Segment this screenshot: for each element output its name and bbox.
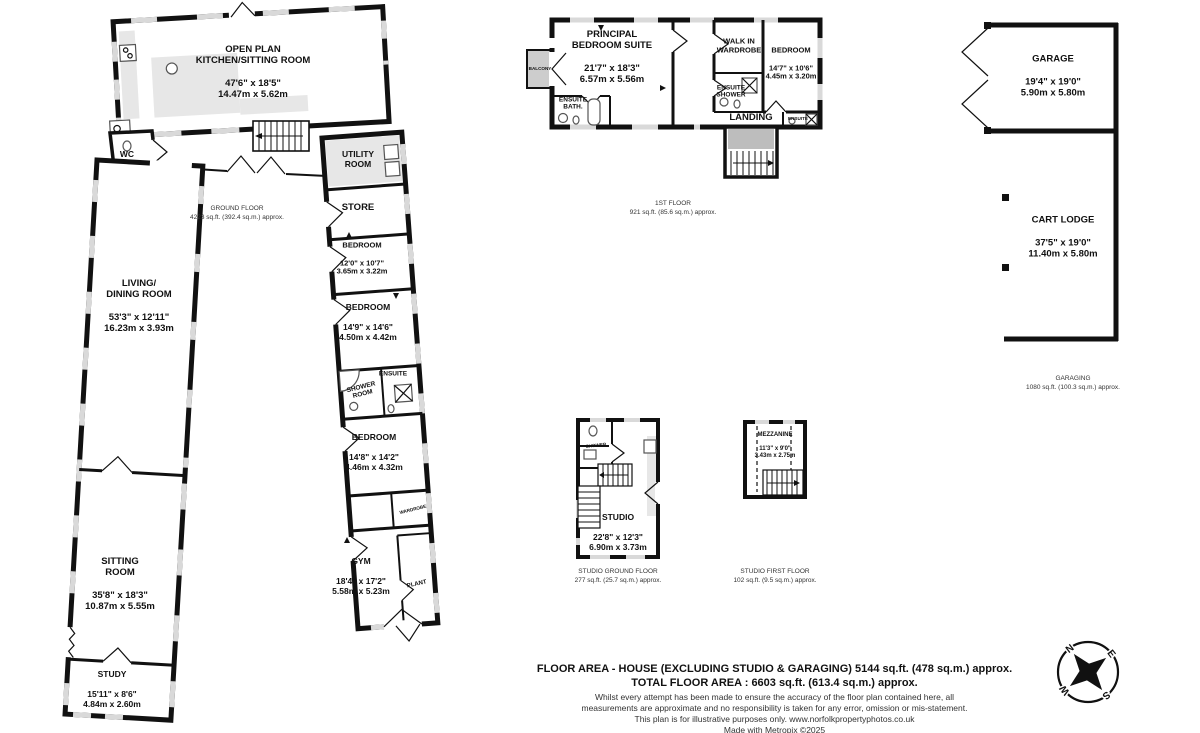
room-label-ensuite-ff: ENSUITE bbox=[788, 111, 808, 127]
floorplan-svg: N E S W bbox=[0, 0, 1200, 733]
left-wing bbox=[65, 160, 203, 720]
disclaimer-text: Whilst every attempt has been made to en… bbox=[352, 692, 1197, 733]
floorplan-page: N E S W OPEN PLAN KITCHEN/SITTING ROOM 4… bbox=[0, 0, 1200, 733]
room-label-cart-lodge: CART LODGE 37'5" x 19'0" 11.40m x 5.80m bbox=[1028, 203, 1097, 270]
garage-door-icon bbox=[962, 80, 988, 128]
room-label-walk-in-wardrobe: WALK IN WARDROBE bbox=[717, 28, 762, 63]
garage-door-icon bbox=[962, 28, 988, 76]
room-label-ensuite-gf: ENSUITE bbox=[379, 363, 407, 386]
studio-first-area-label: STUDIO FIRST FLOOR 102 sq.ft. (9.5 sq.m.… bbox=[733, 560, 816, 594]
room-label-bedroom-ff: BEDROOM 14'7" x 10'6" 4.45m x 3.20m bbox=[766, 37, 817, 90]
room-label-utility: UTILITY ROOM bbox=[342, 139, 374, 179]
stairs-icon bbox=[763, 470, 803, 495]
room-label-kitchen: OPEN PLAN KITCHEN/SITTING ROOM 47'6" x 1… bbox=[196, 33, 311, 111]
room-label-studio-shower: SHOWER bbox=[585, 437, 607, 455]
room-label-bedroom-b: BEDROOM 14'9" x 14'6" 4.50m x 4.42m bbox=[339, 292, 397, 352]
room-label-wc: WC bbox=[120, 139, 134, 169]
room-label-balcony: BALCONY bbox=[529, 61, 552, 77]
footer: FLOOR AREA - HOUSE (EXCLUDING STUDIO & G… bbox=[352, 663, 1197, 733]
sink-icon bbox=[166, 63, 178, 75]
room-label-studio: STUDIO 22'8" x 12'3" 6.90m x 3.73m bbox=[589, 502, 647, 562]
room-label-sitting: SITTING ROOM 35'8" x 18'3" 10.87m x 5.55… bbox=[85, 545, 155, 623]
floor-area-line: FLOOR AREA - HOUSE (EXCLUDING STUDIO & G… bbox=[352, 663, 1197, 675]
room-name: OPEN PLAN KITCHEN/SITTING ROOM bbox=[196, 44, 311, 66]
room-label-principal: PRINCIPAL BEDROOM SUITE 21'7" x 18'3" 6.… bbox=[572, 18, 652, 96]
ground-floor-area-label: GROUND FLOOR 4223 sq.ft. (392.4 sq.m.) a… bbox=[190, 197, 284, 231]
room-label-bedroom-a: BEDROOM 12'0" x 10'7" 3.65m x 3.22m bbox=[337, 232, 388, 285]
first-floor-area-label: 1ST FLOOR 921 sq.ft. (85.6 sq.m.) approx… bbox=[630, 192, 717, 226]
room-label-mezzanine: MEZZANINE 11'3" x 9'0" 3.43m x 2.75m bbox=[755, 425, 796, 467]
room-label-study: STUDY 15'11" x 8'6" 4.84m x 2.60m bbox=[83, 659, 141, 719]
stairs-icon bbox=[253, 121, 309, 151]
room-label-gym: GYM 18'4" x 17'2" 5.58m x 5.23m bbox=[332, 546, 390, 606]
room-dims: 47'6" x 18'5" 14.47m x 5.62m bbox=[196, 78, 311, 100]
room-label-bedroom-c: BEDROOM 14'8" x 14'2" 4.46m x 4.32m bbox=[345, 422, 403, 482]
toilet-icon bbox=[589, 426, 597, 436]
total-floor-area-line: TOTAL FLOOR AREA : 6603 sq.ft. (613.4 sq… bbox=[352, 677, 1197, 689]
post-icon bbox=[1002, 194, 1009, 201]
dryer-icon bbox=[385, 161, 400, 176]
studio-ground-area-label: STUDIO GROUND FLOOR 277 sq.ft. (25.7 sq.… bbox=[575, 560, 662, 594]
room-label-landing: LANDING bbox=[729, 101, 772, 135]
room-label-store: STORE bbox=[342, 191, 375, 225]
room-label-ensuite-bath: ENSUITE BATH. bbox=[559, 89, 587, 120]
washer-icon bbox=[384, 144, 399, 159]
bathtub-icon bbox=[588, 99, 600, 125]
cooktop-icon bbox=[119, 45, 136, 62]
room-label-plant: PLANT bbox=[405, 573, 429, 598]
room-label-living-dining: LIVING/ DINING ROOM 53'3" x 12'11" 16.23… bbox=[104, 267, 174, 345]
room-label-garage: GARAGE 19'4" x 19'0" 5.90m x 5.80m bbox=[1021, 42, 1085, 109]
post-icon bbox=[1002, 264, 1009, 271]
garaging-area-label: GARAGING 1080 sq.ft. (100.3 sq.m.) appro… bbox=[1026, 367, 1120, 401]
